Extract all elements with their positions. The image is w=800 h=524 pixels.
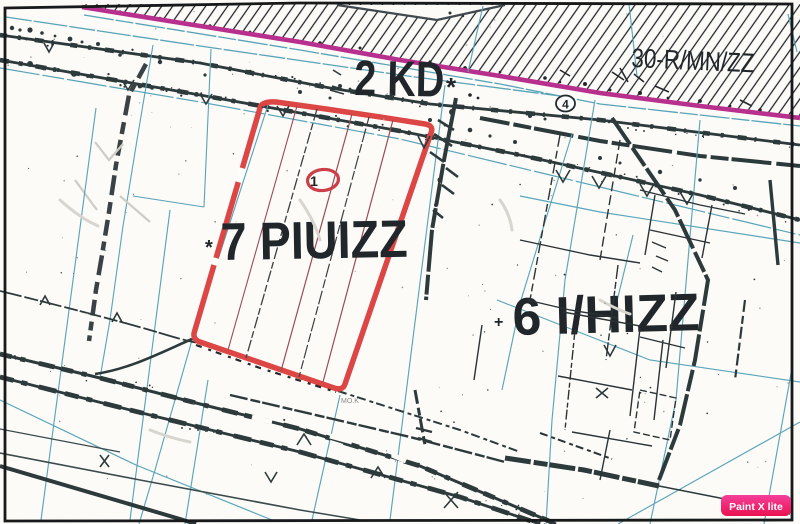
svg-text:2 KD: 2 KD [354, 50, 445, 108]
svg-text:MO.K: MO.K [341, 398, 359, 405]
svg-text:*: * [446, 72, 457, 102]
svg-text:1: 1 [310, 173, 318, 189]
svg-text:30-R/MN/ZZ: 30-R/MN/ZZ [631, 43, 755, 78]
svg-text:4: 4 [562, 98, 569, 112]
svg-text:7 PIUIZZ: 7 PIUIZZ [220, 210, 408, 272]
svg-text:Paint X lite: Paint X lite [729, 501, 783, 513]
svg-text:+: + [494, 314, 503, 331]
svg-text:*: * [205, 237, 213, 259]
svg-text:6 I/HIZZ: 6 I/HIZZ [512, 283, 700, 347]
